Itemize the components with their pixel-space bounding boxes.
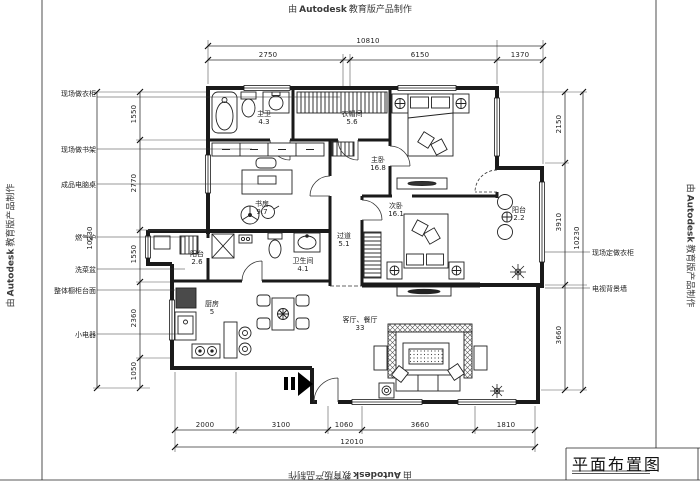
side-table-left	[374, 346, 387, 370]
room-label-study: 书房9.7	[240, 200, 284, 216]
window-living-bottom-1	[352, 400, 422, 405]
annotation-cabinet-countertop: 整体橱柜台面	[24, 286, 96, 296]
study-shelf-row	[212, 143, 324, 156]
bathtub	[212, 92, 237, 133]
drawing-title: 平面布置图	[572, 451, 662, 475]
floor-lamp	[379, 383, 394, 398]
sofa-group	[388, 324, 472, 391]
toilet-second	[268, 233, 282, 258]
watermark-top: 由Autodesk教育版产品制作	[260, 2, 440, 15]
window-balcony-right	[540, 182, 545, 262]
annotation-vegetable-sink: 洗菜盆	[24, 265, 96, 275]
bath-shelf	[239, 235, 252, 243]
annotation-finished-computer-desk: 成品电脑桌	[24, 180, 96, 190]
dresser-master	[397, 178, 447, 189]
nightstand-second-right	[449, 262, 464, 279]
dim-bottom-seg3: 1060	[319, 421, 369, 429]
watermark-left: 由Autodesk教育版产品制作	[4, 156, 17, 336]
study-desk	[242, 170, 292, 194]
dim-top-total: 10810	[343, 37, 393, 45]
nightstand-master-right	[453, 94, 469, 113]
dim-top-seg3: 1370	[495, 51, 545, 59]
room-label-master-bath: 主卫4.3	[242, 110, 286, 126]
room-label-bathroom: 卫生间4.1	[281, 257, 325, 273]
window-service-balcony	[146, 236, 151, 258]
bedroom2-wardrobe	[364, 232, 381, 278]
dim-bottom-seg4: 3660	[395, 421, 445, 429]
nightstand-second-left	[387, 262, 402, 279]
stove	[192, 344, 220, 358]
balcony-plant	[510, 264, 526, 280]
watermark-text: 由	[288, 5, 297, 15]
entrance-arrow	[284, 372, 313, 396]
window-top-bath	[244, 86, 290, 91]
kitchen-sink	[175, 312, 196, 340]
dim-left-seg5: 1050	[130, 346, 138, 396]
dim-right-seg3: 3660	[555, 310, 563, 360]
window-study-left	[206, 155, 211, 193]
dim-bottom-seg1: 2000	[180, 421, 230, 429]
storage-box	[154, 236, 170, 249]
hall-cabinet	[332, 142, 354, 156]
dim-top-seg2: 6150	[395, 51, 445, 59]
nightstand-master-left	[392, 94, 408, 113]
room-label-cloakroom: 衣帽间5.6	[330, 110, 374, 126]
room-label-hallway: 过道5.1	[322, 232, 366, 248]
room-label-living-dining: 客厅、餐厅33	[338, 316, 382, 332]
room-label-second-bedroom: 次卧16.1	[374, 202, 418, 218]
dim-right-seg1: 2150	[555, 99, 563, 149]
bed-master	[408, 94, 453, 156]
annotation-custom-wardrobe: 现场定做衣柜	[592, 248, 634, 258]
dim-left-seg1: 1550	[130, 89, 138, 139]
annotation-gas-boiler: 燃气炉	[24, 233, 96, 243]
annotation-site-made-bookshelf: 现场做书架	[24, 145, 96, 155]
room-label-balcony-west: 阳台2.6	[175, 250, 219, 266]
washbasin-second	[294, 233, 320, 252]
living-plant	[490, 384, 504, 398]
annotation-site-made-wardrobe: 现场做衣柜	[24, 89, 96, 99]
window-top-bedroom	[398, 86, 456, 91]
dim-right-total: 10230	[573, 213, 581, 263]
bed-second	[404, 214, 448, 268]
room-label-kitchen: 厨房5	[190, 300, 234, 316]
dim-right-seg2: 3910	[555, 197, 563, 247]
dim-left-seg2: 2770	[130, 158, 138, 208]
watermark-right: 由Autodesk教育版产品制作	[685, 156, 698, 336]
bar-counter	[224, 322, 251, 358]
room-label-balcony-east: 阳台2.2	[497, 206, 541, 222]
dim-left-seg3: 1550	[130, 229, 138, 279]
dim-bottom-seg5: 1810	[481, 421, 531, 429]
window-bedroom-right	[495, 98, 500, 156]
study-chair	[256, 158, 276, 168]
tv-cabinet	[397, 287, 451, 296]
dining-set	[257, 295, 309, 330]
window-living-bottom-2	[458, 400, 516, 405]
dim-left-seg4: 2360	[130, 293, 138, 343]
dim-bottom-total: 12010	[327, 438, 377, 446]
watermark-bottom: 由Autodesk教育版产品制作	[260, 469, 440, 482]
dim-top-seg1: 2750	[243, 51, 293, 59]
annotation-small-appliances: 小电器	[24, 330, 96, 340]
room-label-master-bedroom: 主卧16.8	[356, 156, 400, 172]
dim-bottom-seg2: 3100	[256, 421, 306, 429]
side-table-right	[474, 346, 487, 370]
annotation-tv-background-wall: 电视背景墙	[592, 284, 627, 294]
floor-plan-page: 由Autodesk教育版产品制作 由Autodesk教育版产品制作 由Autod…	[0, 0, 700, 490]
